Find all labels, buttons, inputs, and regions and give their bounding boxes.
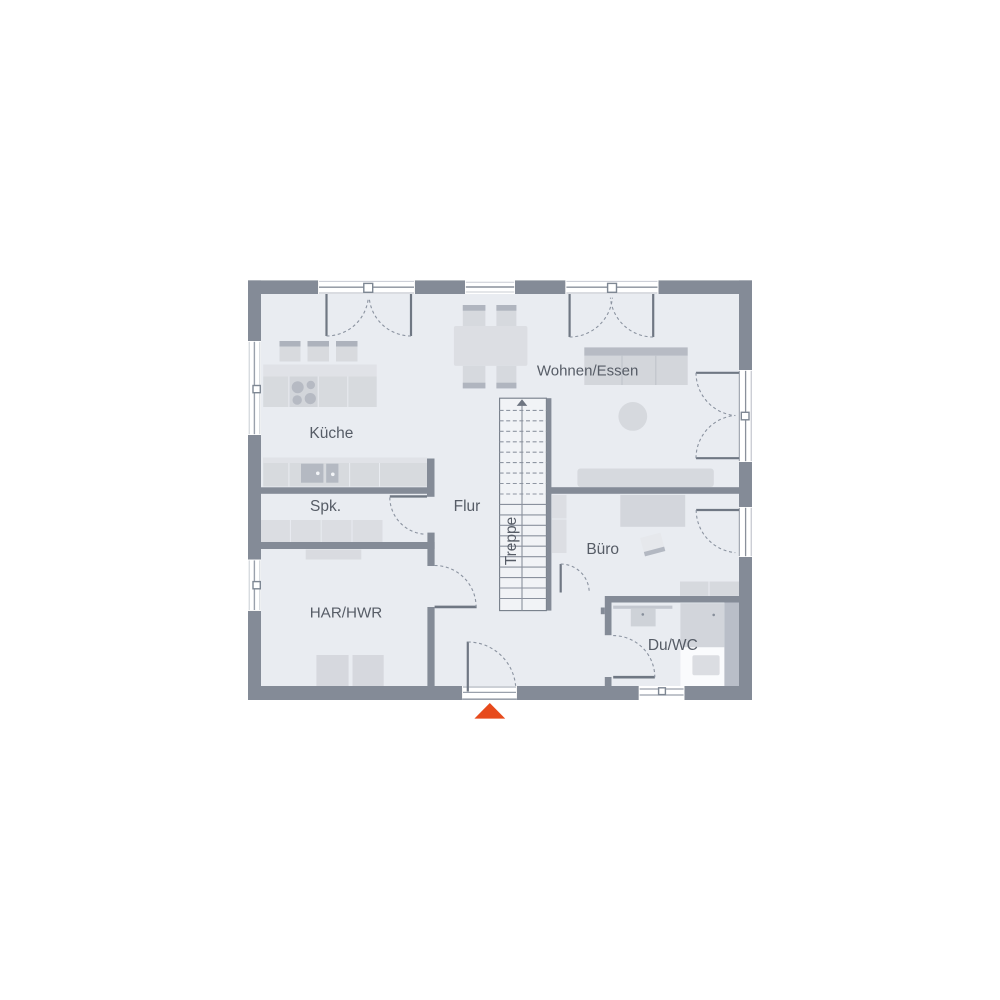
- svg-text:HAR/HWR: HAR/HWR: [310, 604, 383, 621]
- svg-text:Büro: Büro: [586, 541, 619, 558]
- svg-text:Küche: Küche: [309, 425, 353, 442]
- svg-text:Flur: Flur: [454, 498, 481, 515]
- svg-text:Du/WC: Du/WC: [648, 637, 698, 654]
- svg-text:Treppe: Treppe: [503, 517, 520, 566]
- svg-text:Wohnen/Essen: Wohnen/Essen: [537, 362, 638, 379]
- svg-text:Spk.: Spk.: [310, 498, 341, 515]
